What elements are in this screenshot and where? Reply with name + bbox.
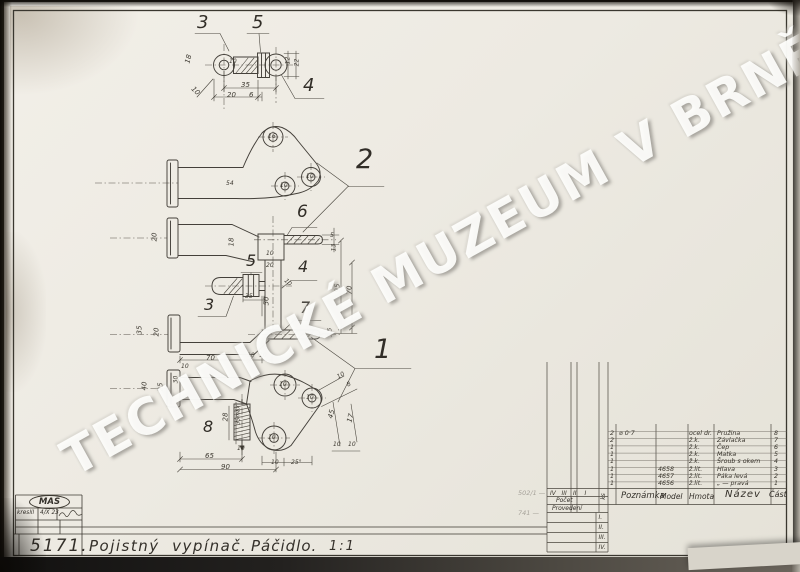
dimension-label: 12 bbox=[284, 57, 291, 65]
callout-number-4: 4 bbox=[298, 259, 308, 275]
parts-cell-nazev: Hlava bbox=[717, 466, 735, 473]
parts-cell-hmota: ž.k. bbox=[689, 437, 700, 444]
parts-cell-nazev: Šroub s okem bbox=[717, 458, 760, 465]
dimension-label: 95 bbox=[333, 284, 341, 293]
parts-cell-cast: 4 bbox=[774, 458, 778, 465]
parts-cell-hmota: ž.lit. bbox=[689, 480, 702, 487]
parts-cell-cast: 6 bbox=[774, 444, 778, 451]
version-row-label: III. bbox=[599, 534, 606, 541]
dimension-label: 54 bbox=[226, 180, 234, 187]
header-unit: ks bbox=[600, 493, 607, 500]
count-col-header: IV bbox=[550, 490, 556, 497]
dimension-label: 70 bbox=[206, 354, 215, 362]
scan-edge-bottom bbox=[0, 557, 800, 572]
parts-cell-hmota: ocel dr. bbox=[689, 430, 712, 437]
parts-cell-nazev: „ — pravá bbox=[717, 480, 749, 487]
dimension-label: 35 bbox=[135, 326, 143, 335]
labels-layer: 5171. Pojistný vypínač. Páčidlo. 1:1 MAS… bbox=[0, 0, 800, 572]
dimension-label: 8 bbox=[346, 381, 353, 389]
parts-cell-count: 1 bbox=[610, 473, 614, 480]
dimension-label: 10 bbox=[268, 434, 276, 441]
dimension-label: 10 bbox=[271, 459, 279, 466]
scan-corner-shadow bbox=[768, 0, 800, 16]
parts-cell-nazev: Páka levá bbox=[717, 473, 747, 480]
dimension-label: 25 bbox=[156, 383, 164, 392]
dimension-label: 17 bbox=[345, 413, 355, 424]
parts-cell-poznamka: ⌀ 0·7 bbox=[619, 430, 635, 437]
dimension-label: 13 bbox=[330, 244, 337, 252]
dimension-label: 6 bbox=[249, 91, 253, 99]
version-row-label: II. bbox=[599, 524, 604, 531]
dimension-label: 10 bbox=[189, 85, 201, 97]
scan-corner-smudge bbox=[0, 498, 46, 572]
callout-number-3: 3 bbox=[204, 297, 214, 313]
dimension-label: 18 bbox=[227, 238, 235, 247]
dimension-label: 20 bbox=[152, 328, 160, 337]
version-row-label: I. bbox=[599, 514, 603, 521]
parts-cell-nazev: Závlačka bbox=[717, 437, 745, 444]
header-poznamka: Poznámka bbox=[621, 491, 665, 501]
callout-number-5: 5 bbox=[246, 253, 256, 269]
dimension-label: 10 bbox=[181, 363, 189, 370]
dimension-label: 10 bbox=[266, 250, 274, 257]
callout-number-8: 8 bbox=[203, 419, 213, 435]
parts-cell-hmota: ž.lit. bbox=[689, 473, 702, 480]
dimension-label: 35 bbox=[245, 293, 253, 300]
drawing-scale: 1:1 bbox=[329, 539, 356, 554]
parts-cell-count: 2 bbox=[610, 437, 614, 444]
parts-cell-model: 4656 bbox=[658, 480, 674, 487]
parts-cell-cast: 2 bbox=[774, 473, 778, 480]
dimension-label: 22 bbox=[293, 59, 300, 67]
dimension-label: 20 bbox=[266, 262, 274, 269]
parts-cell-count: 2 bbox=[610, 430, 614, 437]
header-hmota: Hmota bbox=[689, 492, 714, 501]
parts-cell-model: 4657 bbox=[658, 473, 674, 480]
dimension-label: 90 bbox=[221, 463, 230, 471]
dimension-label: 10 bbox=[259, 352, 267, 359]
parts-cell-count: 1 bbox=[610, 480, 614, 487]
count-col-header: II bbox=[573, 490, 577, 497]
parts-cell-nazev: Pružina bbox=[717, 430, 740, 437]
dimension-label: 10 bbox=[229, 58, 237, 65]
header-pocet: Počet bbox=[556, 497, 573, 504]
dimension-label: 10 bbox=[279, 381, 287, 388]
header-cast: Část bbox=[769, 490, 787, 499]
callout-number-6: 6 bbox=[297, 204, 308, 221]
dimension-label: 10 bbox=[237, 445, 245, 452]
parts-cell-count: 1 bbox=[610, 458, 614, 465]
dimension-label: 10 bbox=[283, 277, 293, 287]
version-row-label: IV. bbox=[599, 544, 606, 551]
parts-cell-cast: 1 bbox=[774, 480, 778, 487]
parts-cell-model: 4658 bbox=[658, 466, 674, 473]
parts-cell-cast: 3 bbox=[774, 466, 778, 473]
callout-number-1: 1 bbox=[374, 336, 391, 363]
parts-cell-count: 1 bbox=[610, 451, 614, 458]
parts-cell-count: 1 bbox=[610, 466, 614, 473]
parts-cell-cast: 8 bbox=[774, 430, 778, 437]
dimension-label: 45 bbox=[326, 409, 336, 420]
parts-cell-hmota: ž.k. bbox=[689, 458, 700, 465]
count-col-header: III bbox=[562, 490, 567, 497]
dimension-label: 10 bbox=[306, 394, 314, 401]
drawing-title: Pojistný vypínač. bbox=[89, 537, 247, 555]
dimension-label: 50 bbox=[262, 297, 270, 306]
header-model: Model bbox=[660, 492, 683, 501]
dimension-label: 70 bbox=[345, 286, 353, 295]
dimension-label: 35máx bbox=[236, 405, 242, 424]
dimension-label: 10 bbox=[280, 182, 288, 189]
callout-number-4: 4 bbox=[303, 77, 314, 95]
dimension-label: 35 bbox=[241, 81, 250, 89]
parts-cell-hmota: ž.k. bbox=[689, 444, 700, 451]
callout-number-3: 3 bbox=[197, 14, 208, 32]
scan-edge-right bbox=[792, 0, 800, 572]
callout-number-5: 5 bbox=[252, 14, 263, 32]
dimension-label: 30 bbox=[172, 376, 179, 384]
callout-number-7: 7 bbox=[300, 300, 310, 316]
margin-note: 502/1 — bbox=[518, 489, 545, 497]
dimension-label: 65 bbox=[205, 452, 214, 460]
dimension-label: 28 bbox=[221, 413, 229, 422]
dimension-label: 10 bbox=[336, 371, 346, 381]
parts-cell-hmota: ž.lit. bbox=[689, 466, 702, 473]
dimension-label: 20 bbox=[227, 91, 236, 99]
parts-cell-count: 1 bbox=[610, 444, 614, 451]
drawing-subtitle: Páčidlo. bbox=[251, 537, 317, 555]
dimension-label: 3,5 bbox=[326, 328, 333, 338]
scan-edge-left bbox=[0, 0, 12, 572]
parts-cell-nazev: Čep bbox=[717, 444, 729, 451]
scan-edge-top bbox=[0, 0, 800, 7]
callout-number-2: 2 bbox=[356, 146, 373, 173]
dimension-label: 18 bbox=[183, 54, 193, 65]
dimension-label: 20 bbox=[150, 233, 158, 242]
parts-cell-cast: 5 bbox=[774, 451, 778, 458]
margin-note: 741 — bbox=[518, 509, 539, 517]
dimension-label: 16 bbox=[268, 133, 276, 140]
dimension-label: 10 bbox=[333, 441, 341, 448]
dimension-label: 5 bbox=[330, 232, 334, 239]
header-provedeni: Provedení bbox=[552, 505, 582, 512]
count-col-header: I bbox=[585, 490, 587, 497]
header-nazev: Název bbox=[725, 489, 761, 500]
dimension-label: 40 bbox=[140, 382, 148, 391]
dimension-label: 10 bbox=[306, 173, 314, 180]
dimension-label: 10 bbox=[247, 352, 255, 359]
parts-cell-cast: 7 bbox=[774, 437, 778, 444]
dimension-label: 25° bbox=[291, 459, 302, 466]
dimension-label: 10 bbox=[348, 441, 356, 448]
